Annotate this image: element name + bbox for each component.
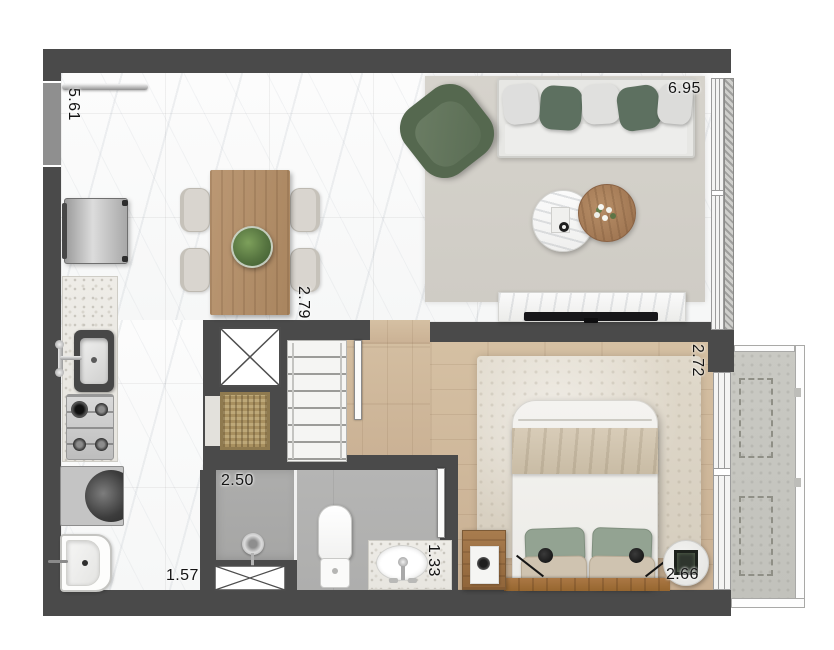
balcony-rail-bottom — [731, 598, 805, 608]
doorway-threshold-wood — [362, 320, 430, 344]
living-window — [711, 78, 724, 330]
basket-weave — [223, 395, 267, 447]
tv-stand — [584, 318, 598, 323]
sofa-pillow-4 — [615, 83, 663, 132]
vanity-tap-right — [408, 578, 417, 583]
wardrobe-rail-right — [340, 343, 342, 459]
dimension-label-2-79: 2.79 — [294, 286, 312, 319]
wall-tv — [430, 322, 713, 342]
balcony-door-line1 — [718, 373, 719, 589]
bathroom-door-leaf — [437, 468, 445, 538]
dining-chair-3 — [290, 188, 320, 232]
dining-chair-1 — [180, 188, 210, 232]
sofa-pillow-1 — [501, 82, 541, 126]
basket-mat — [205, 396, 221, 446]
balcony-planter-1 — [739, 378, 773, 458]
wall-bottom — [43, 590, 731, 616]
washer-drum — [85, 470, 124, 522]
wardrobe-rail-left — [292, 343, 294, 459]
dimension-label-2-66: 2.66 — [666, 566, 699, 584]
burner-3 — [73, 438, 86, 451]
bed-blanket — [512, 428, 658, 474]
fridge — [64, 198, 128, 264]
coffee-table-ring — [559, 222, 569, 232]
kitchen-faucet-knob-bottom — [55, 368, 64, 377]
sofa-pillow-2 — [539, 85, 584, 132]
nightstand-left-object — [477, 557, 490, 570]
kitchen-faucet-spout — [60, 356, 82, 360]
balcony-rail-post2 — [794, 478, 801, 487]
living-window-line2 — [719, 79, 720, 329]
dimension-label-2-72: 2.72 — [688, 344, 706, 377]
coffee-table-wood — [578, 184, 636, 242]
balcony-rail-top — [734, 345, 795, 352]
wardrobe — [287, 340, 347, 462]
fridge-handle — [62, 203, 67, 259]
wall-hall-band — [287, 320, 370, 340]
dimension-label-5-61: 5.61 — [64, 88, 82, 121]
duct-shaft — [219, 327, 281, 387]
burner-2 — [95, 403, 108, 416]
vanity-tap-left — [389, 578, 398, 583]
table-plant — [231, 226, 273, 268]
balcony-door-line2 — [724, 373, 725, 589]
fridge-hinge-top — [122, 200, 128, 206]
shower-drain — [242, 533, 264, 555]
bed-fold-line — [518, 419, 652, 421]
headboard — [504, 578, 670, 591]
left-window — [43, 82, 61, 167]
dimension-label-1-57: 1.57 — [166, 567, 199, 585]
laundry-faucet — [48, 560, 68, 563]
floor-plan: 5.61 6.95 2.79 2.72 2.50 1.57 1.33 2.66 — [0, 0, 834, 650]
living-window-divider — [711, 190, 724, 196]
toilet-button — [332, 568, 338, 574]
laundry-tub-drain — [82, 560, 88, 566]
reading-lamp-right — [629, 548, 644, 563]
flowers — [598, 204, 604, 210]
balcony-planter-2 — [739, 496, 773, 576]
sofa-seat — [505, 124, 687, 154]
shower-glass — [294, 470, 297, 560]
burner-1 — [71, 401, 88, 418]
dining-chair-2 — [180, 248, 210, 292]
balcony-rail-right — [795, 345, 805, 608]
living-window-line1 — [715, 79, 716, 329]
balcony-door-divider — [713, 468, 731, 476]
basket — [220, 392, 270, 450]
living-window-sill — [724, 78, 734, 330]
reading-lamp-left — [538, 548, 553, 563]
dimension-label-2-50: 2.50 — [221, 472, 254, 490]
sofa-pillow-3 — [581, 83, 621, 125]
dimension-label-1-33: 1.33 — [424, 544, 442, 577]
wall-right-mid-chunk — [708, 330, 734, 372]
left-window-tick-top — [43, 81, 61, 83]
wall-top — [43, 49, 731, 73]
dimension-label-6-95: 6.95 — [668, 80, 701, 98]
left-window-tick-bottom — [43, 165, 61, 167]
balcony-rail-post1 — [794, 388, 801, 397]
vanity-faucet-stem — [401, 566, 405, 580]
toilet-lid — [318, 505, 352, 561]
hall-door-leaf — [354, 340, 362, 420]
kitchen-faucet-knob-top — [55, 340, 64, 349]
bottom-duct-box — [214, 565, 286, 591]
fridge-hinge-bottom — [122, 256, 128, 262]
burner-4 — [95, 438, 108, 451]
kitchen-sink-drain — [91, 357, 97, 363]
washer — [60, 466, 124, 526]
balcony-sliding-door — [713, 372, 731, 590]
